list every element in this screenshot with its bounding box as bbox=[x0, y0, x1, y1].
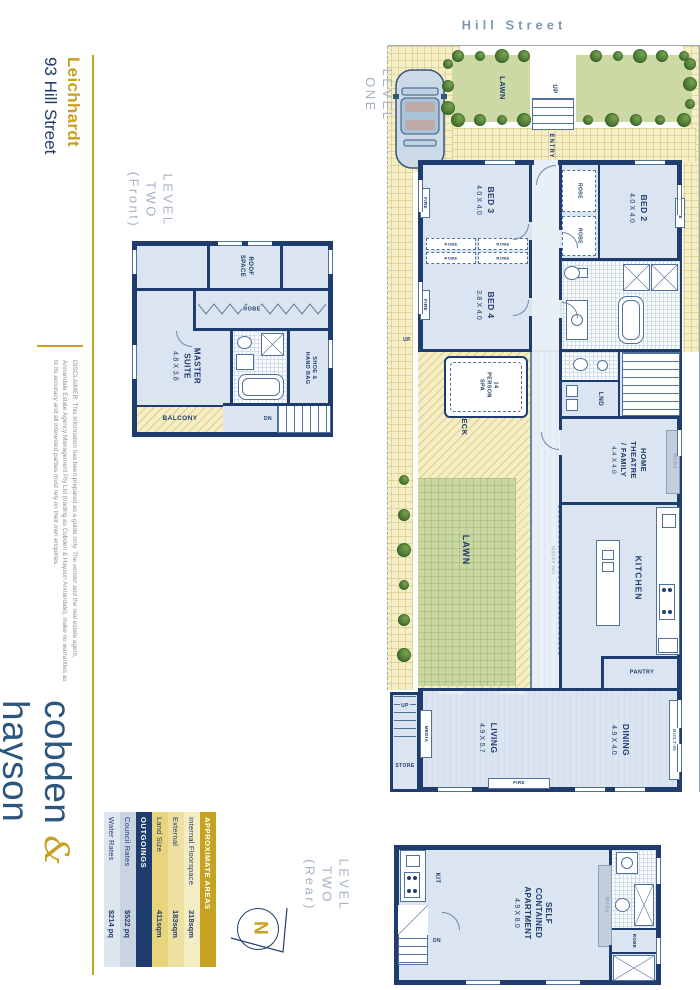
fridge bbox=[658, 638, 678, 653]
rear-lawn-label: LAWN bbox=[459, 535, 471, 566]
floorplan-sheet: Hill Street LAWN UP bbox=[0, 0, 700, 990]
window bbox=[132, 250, 137, 274]
tree-icon bbox=[655, 115, 665, 125]
rear-stairs-up-label: UP bbox=[400, 703, 410, 710]
window bbox=[418, 282, 423, 314]
spa-label: 14 PERSON SPA bbox=[477, 372, 498, 398]
level-two-rear-label: LEVEL TWO (Rear) bbox=[301, 859, 352, 912]
toilet bbox=[237, 336, 252, 349]
sink bbox=[602, 550, 614, 560]
living-dining-floor bbox=[420, 691, 680, 787]
car-icon bbox=[392, 68, 448, 170]
footer-divider bbox=[37, 345, 83, 347]
wall bbox=[562, 380, 618, 382]
highlite-label: Highlite Win bbox=[550, 546, 556, 575]
level-one-label: LEVEL ONE bbox=[361, 69, 395, 122]
tree-icon bbox=[683, 77, 697, 91]
front-lawn-label: LAWN bbox=[497, 76, 507, 100]
linen-cupboard bbox=[613, 955, 655, 981]
gallery-hall bbox=[532, 352, 560, 688]
glass-wall bbox=[530, 352, 532, 688]
front-lawn-south bbox=[453, 55, 530, 122]
entry-steps bbox=[532, 98, 574, 130]
robe-label: ROBE bbox=[496, 255, 509, 260]
window bbox=[677, 430, 682, 456]
robe-label: ROBE bbox=[496, 241, 509, 246]
front-door-gap bbox=[534, 160, 558, 165]
tree-icon bbox=[630, 114, 642, 126]
wall bbox=[280, 244, 283, 290]
agency-logo: cobden & hayson bbox=[0, 700, 78, 990]
suburb-title: Leichhardt bbox=[63, 57, 83, 154]
tree-icon bbox=[656, 50, 668, 62]
wall bbox=[230, 331, 233, 403]
washer bbox=[566, 385, 578, 397]
window bbox=[656, 938, 661, 964]
row-value: 318sqm bbox=[188, 910, 197, 962]
shower bbox=[634, 884, 654, 926]
robe-label: ROBE bbox=[576, 183, 583, 199]
sink bbox=[602, 562, 614, 572]
l2r-dn-label: DN bbox=[433, 938, 441, 945]
l2f-robe-label: ROBE bbox=[242, 305, 262, 314]
areas-header: APPROXIMATE AREAS bbox=[200, 812, 216, 967]
tree-icon bbox=[633, 49, 647, 63]
roof-space-label: ROOF SPACE bbox=[237, 255, 253, 277]
tree-icon bbox=[613, 51, 623, 61]
wall bbox=[609, 945, 612, 982]
tree-icon bbox=[442, 80, 454, 92]
window bbox=[546, 980, 580, 985]
table-row: Land Size411sqm bbox=[152, 812, 168, 967]
window bbox=[656, 858, 661, 884]
property-title: Leichhardt 93 Hill Street bbox=[40, 57, 83, 154]
shower bbox=[261, 333, 284, 356]
wall bbox=[529, 316, 532, 352]
theatre-label: HOME THEATRE / FAMILY4.4 X 4.0 bbox=[608, 441, 648, 479]
logo-ampersand-icon: & bbox=[36, 835, 76, 866]
highlite-window-line bbox=[558, 505, 559, 655]
wall bbox=[529, 163, 532, 222]
balcony-label: BALCONY bbox=[163, 415, 198, 423]
window bbox=[328, 250, 333, 274]
bathtub bbox=[238, 374, 284, 400]
tree-icon bbox=[441, 101, 455, 115]
l2f-stairs bbox=[277, 405, 331, 433]
tree-icon bbox=[518, 50, 530, 62]
toilet bbox=[573, 358, 588, 371]
table-row: Water Rates$214 pq bbox=[104, 812, 120, 967]
basin bbox=[621, 857, 633, 869]
window bbox=[248, 241, 272, 246]
laundry-label: LND bbox=[596, 392, 604, 407]
fire-label: FIRE bbox=[513, 780, 525, 786]
compass-needle-icon bbox=[225, 895, 295, 965]
wall bbox=[601, 656, 604, 690]
disclaimer-text: DISCLAIMER: This information has been pr… bbox=[50, 360, 79, 682]
footer-rule bbox=[92, 55, 94, 975]
tree-icon bbox=[474, 114, 486, 126]
deck-up-label: UP bbox=[403, 337, 411, 344]
cooktop bbox=[404, 872, 420, 898]
tree-icon bbox=[497, 115, 507, 125]
table-row: External183sqm bbox=[168, 812, 184, 967]
wall bbox=[560, 502, 680, 505]
tree-icon bbox=[495, 49, 509, 63]
tree-icon bbox=[677, 113, 691, 127]
logo-hayson: hayson bbox=[0, 700, 36, 822]
wall bbox=[602, 656, 680, 659]
window bbox=[438, 787, 472, 792]
window bbox=[132, 345, 137, 379]
l2f-dn-label: DN bbox=[264, 416, 272, 423]
pantry-label: PANTRY bbox=[630, 669, 654, 676]
wall bbox=[609, 848, 612, 865]
address-title: 93 Hill Street bbox=[40, 57, 60, 154]
tree-icon bbox=[605, 113, 619, 127]
wall bbox=[559, 352, 562, 430]
window bbox=[677, 185, 682, 215]
bed2-label: BED 24.0 X 4.0 bbox=[627, 193, 649, 223]
kitchen-label: KITCHEN bbox=[632, 556, 643, 601]
wall bbox=[529, 240, 532, 298]
tree-icon bbox=[451, 113, 465, 127]
window bbox=[328, 340, 333, 368]
basin bbox=[597, 360, 608, 371]
front-lawn-north bbox=[576, 55, 692, 122]
wall bbox=[207, 244, 210, 290]
shower bbox=[623, 264, 650, 291]
entry-steps-up-label: UP bbox=[549, 84, 557, 93]
dining-label: DINING4.9 X 4.0 bbox=[609, 724, 631, 756]
robe-label: ROBE bbox=[444, 255, 457, 260]
stair-winder bbox=[398, 905, 428, 935]
wall bbox=[193, 291, 196, 331]
wall bbox=[612, 952, 656, 954]
store-label: STORE bbox=[395, 763, 414, 770]
rear-lawn bbox=[418, 478, 516, 686]
front-verandah bbox=[453, 128, 696, 162]
row-label: Internal Floorspace bbox=[188, 817, 197, 910]
l2r-robe-label: ROBE bbox=[631, 934, 637, 949]
tree-icon bbox=[399, 475, 409, 485]
robe-label: ROBE bbox=[444, 241, 457, 246]
media-small-label: Media bbox=[603, 897, 610, 913]
media-label: MEDIA bbox=[423, 726, 429, 743]
logo-cobden: cobden bbox=[37, 700, 78, 824]
bathtub bbox=[618, 296, 644, 344]
tree-icon bbox=[398, 509, 410, 521]
window bbox=[635, 160, 665, 165]
shower bbox=[651, 264, 678, 291]
window bbox=[677, 700, 682, 728]
kitchen-bench bbox=[656, 507, 680, 655]
robe-rail bbox=[198, 300, 326, 318]
table-row: Council Rates$522 pq bbox=[120, 812, 136, 967]
wall bbox=[598, 163, 600, 260]
wall bbox=[618, 352, 620, 416]
tree-icon bbox=[452, 50, 464, 62]
tree-icon bbox=[397, 543, 411, 557]
tree-icon bbox=[443, 59, 453, 69]
sink bbox=[406, 855, 420, 867]
shoe-handbag-label: SHOE & HAND BAG bbox=[303, 352, 317, 385]
kit-label: KIT bbox=[432, 873, 440, 884]
tree-icon bbox=[398, 614, 410, 626]
main-stairs bbox=[622, 352, 680, 416]
tree-icon bbox=[590, 50, 602, 62]
bed3-label: BED 34.0 X 4.0 bbox=[474, 185, 496, 215]
tree-icon bbox=[399, 580, 409, 590]
level-two-front-label: LEVEL TWO (Front) bbox=[125, 172, 176, 229]
cooktop bbox=[659, 584, 675, 620]
master-label: MASTER SUITE4.8 X 3.8 bbox=[170, 348, 201, 384]
window bbox=[677, 744, 682, 772]
tree-icon bbox=[397, 648, 411, 662]
vanity bbox=[236, 354, 254, 370]
window bbox=[485, 160, 515, 165]
floorplan-page: Hill Street LAWN UP bbox=[0, 0, 700, 990]
street-name: Hill Street bbox=[439, 18, 589, 35]
outgoings-header: OUTGOINGS bbox=[136, 812, 152, 967]
wall bbox=[560, 416, 680, 419]
window bbox=[575, 787, 605, 792]
entry-label: ENTRY bbox=[546, 133, 554, 158]
window bbox=[418, 180, 423, 212]
toilet bbox=[615, 898, 630, 912]
wall bbox=[559, 455, 562, 691]
apartment-label: SELF CONTAINED APARTMENT4.9 X 8.0 bbox=[511, 886, 553, 939]
bed-wing-hall bbox=[532, 165, 560, 350]
tree-icon bbox=[684, 58, 696, 70]
table-row: Internal Floorspace318sqm bbox=[184, 812, 200, 967]
tree-icon bbox=[583, 115, 593, 125]
wc-room bbox=[562, 352, 618, 380]
dryer bbox=[566, 399, 578, 411]
tree-icon bbox=[517, 113, 531, 127]
toilet bbox=[564, 266, 580, 280]
areas-outgoings-table: APPROXIMATE AREAS Internal Floorspace318… bbox=[104, 812, 216, 967]
wall bbox=[135, 288, 331, 291]
wall bbox=[137, 405, 223, 407]
window bbox=[615, 787, 645, 792]
wall bbox=[287, 331, 290, 403]
oven bbox=[662, 514, 676, 528]
tree-icon bbox=[685, 99, 695, 109]
living-label: LIVING4.9 X 5.7 bbox=[477, 723, 499, 754]
wall bbox=[223, 403, 331, 406]
window bbox=[466, 980, 500, 985]
window bbox=[218, 241, 242, 246]
tree-icon bbox=[475, 51, 485, 61]
wall bbox=[612, 928, 656, 930]
bed4-label: BED 43.8 X 4.0 bbox=[474, 290, 496, 320]
